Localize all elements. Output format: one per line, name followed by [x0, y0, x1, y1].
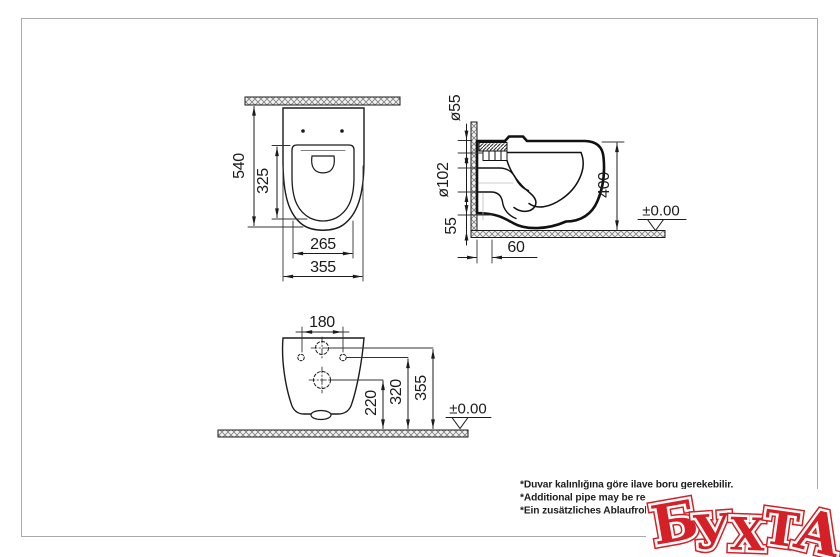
- inlet-pipe-section: [479, 143, 507, 152]
- dim-bottom-clearance: 55: [443, 217, 460, 235]
- dim-outlet-offset: 60: [507, 239, 525, 256]
- dim-outlet-center-height: 220: [363, 390, 380, 416]
- fixing-dot-left: [301, 129, 305, 133]
- dim-outlet-diameter: ø102: [435, 162, 452, 198]
- side-view: ø55 ø102 55 400 60 ±0.00: [435, 94, 686, 263]
- dim-seat-depth: 325: [255, 168, 272, 194]
- dim-overall-depth: 540: [231, 153, 248, 179]
- toilet-back-outline: [283, 338, 364, 414]
- dim-hole-spacing: 180: [309, 314, 335, 331]
- dim-hole-height: 320: [388, 379, 405, 405]
- footnote-turkish: *Duvar kalınlığına göre ilave boru gerek…: [520, 480, 734, 491]
- wall-section-hatch: [245, 97, 400, 105]
- dim-seat-width: 265: [310, 236, 336, 253]
- level-triangle-icon: [648, 220, 664, 231]
- page-frame: [22, 19, 818, 537]
- watermark-logo: Б Б Б У У У Х Х Х Т Т Т А А А: [646, 487, 840, 557]
- trap-cover: [311, 411, 331, 420]
- svg-text:У: У: [691, 504, 733, 557]
- floor-section-hatch: [471, 231, 665, 238]
- floor-section-hatch: [218, 430, 468, 437]
- dim-overall-width: 355: [310, 259, 336, 276]
- flush-cup: [312, 156, 335, 173]
- bottom-view: 180 220 320 355 ±0.00: [218, 314, 491, 437]
- dim-inlet-diameter: ø55: [447, 94, 464, 121]
- level-mark-bottom: ±0.00: [446, 401, 491, 429]
- technical-drawing-page: 540 325 265 355: [0, 0, 840, 557]
- level-label: ±0.00: [449, 401, 486, 418]
- level-mark-side: ±0.00: [638, 203, 686, 231]
- dim-inlet-center-height: 355: [413, 375, 430, 401]
- level-label: ±0.00: [642, 203, 679, 220]
- fixing-dot-right: [340, 129, 344, 133]
- drawing-canvas: 540 325 265 355: [0, 0, 840, 557]
- top-view: 540 325 265 355: [231, 97, 400, 281]
- dim-mounting-height: 400: [596, 172, 613, 198]
- watermark-letter-u: У У У: [691, 504, 733, 557]
- level-triangle-icon: [452, 418, 468, 429]
